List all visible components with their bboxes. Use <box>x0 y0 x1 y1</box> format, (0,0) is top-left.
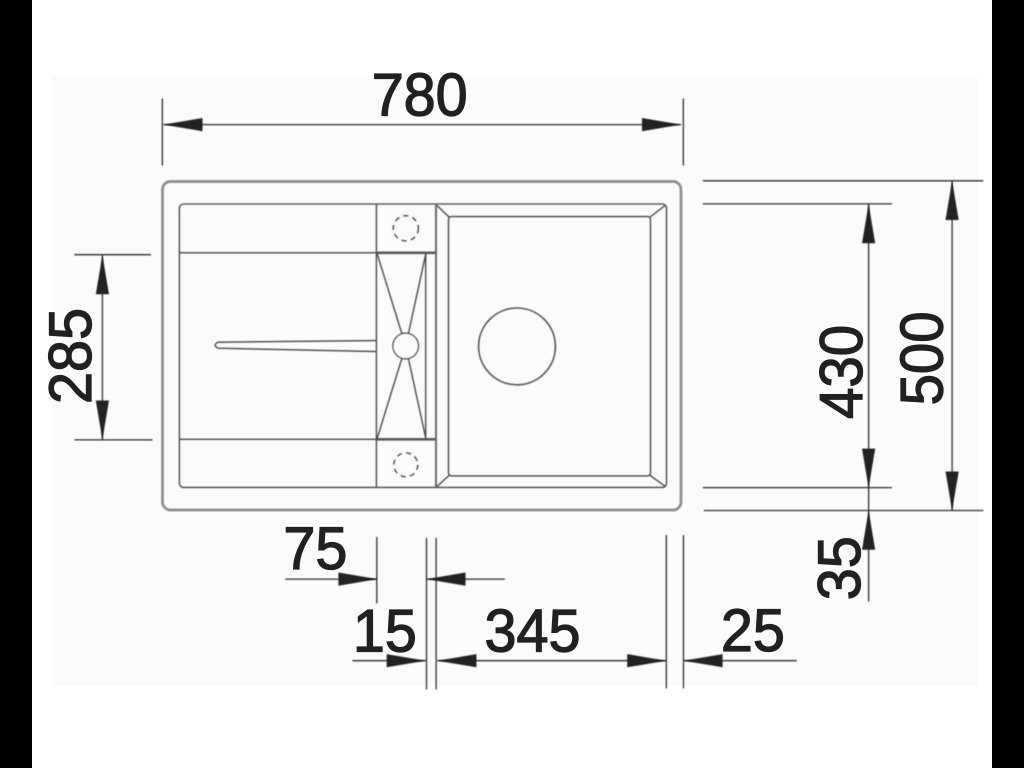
svg-text:500: 500 <box>889 311 956 405</box>
svg-text:345: 345 <box>485 598 581 665</box>
svg-text:430: 430 <box>808 325 875 419</box>
svg-text:35: 35 <box>806 536 873 600</box>
svg-text:285: 285 <box>37 308 104 404</box>
svg-text:75: 75 <box>283 515 347 582</box>
svg-text:780: 780 <box>372 62 468 129</box>
svg-text:15: 15 <box>353 598 417 665</box>
svg-text:25: 25 <box>721 597 785 664</box>
